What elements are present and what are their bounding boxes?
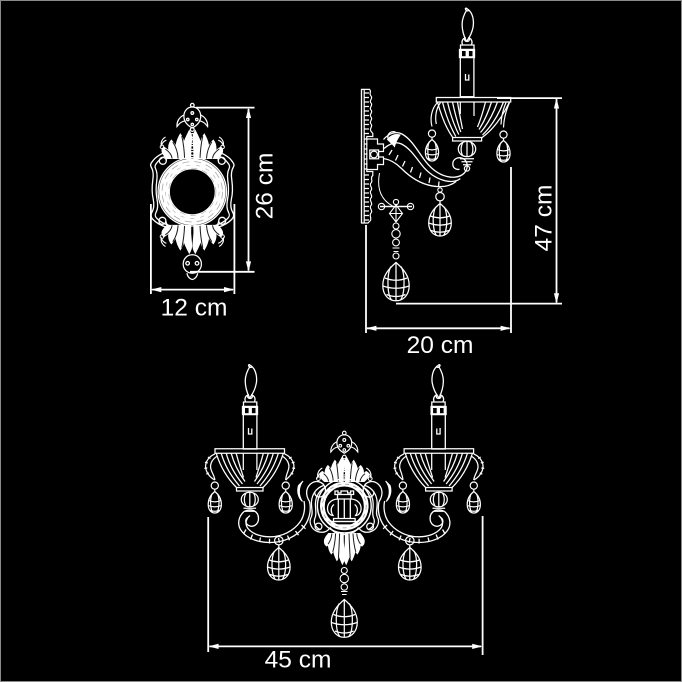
svg-text:26 cm: 26 cm xyxy=(252,153,279,220)
svg-text:12 cm: 12 cm xyxy=(161,295,228,322)
svg-text:45 cm: 45 cm xyxy=(265,646,332,673)
svg-text:47 cm: 47 cm xyxy=(531,185,558,252)
svg-text:20 cm: 20 cm xyxy=(407,332,474,359)
